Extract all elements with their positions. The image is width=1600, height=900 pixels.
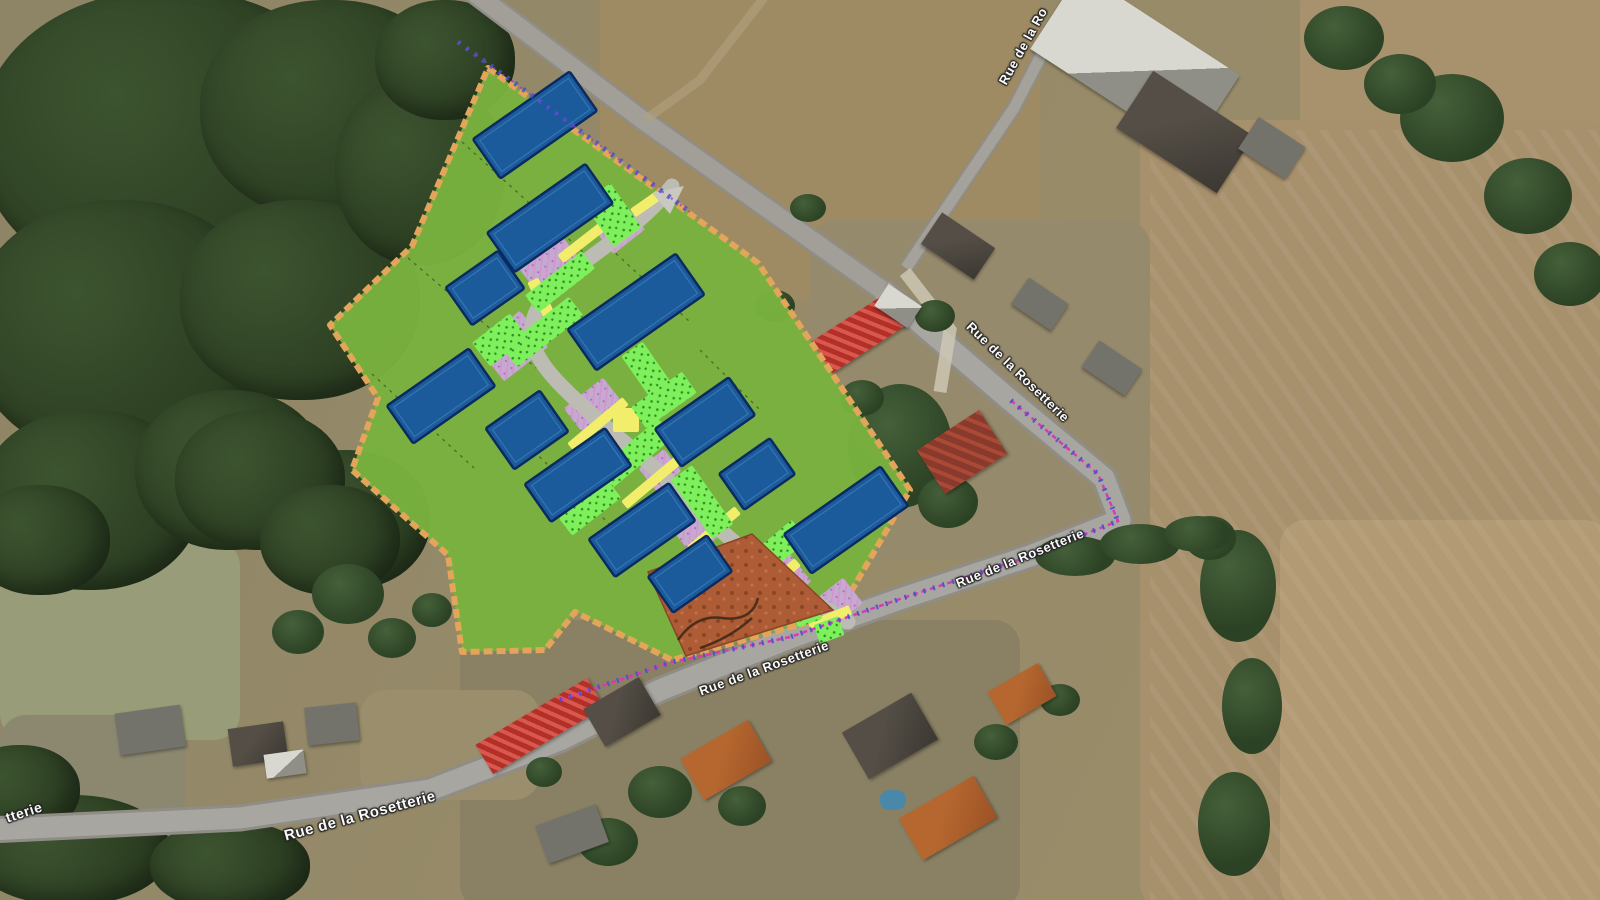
site-plan-overlay — [0, 0, 1600, 900]
aerial-map-view[interactable]: Rue de la RoRue de la RosetterieRue de l… — [0, 0, 1600, 900]
